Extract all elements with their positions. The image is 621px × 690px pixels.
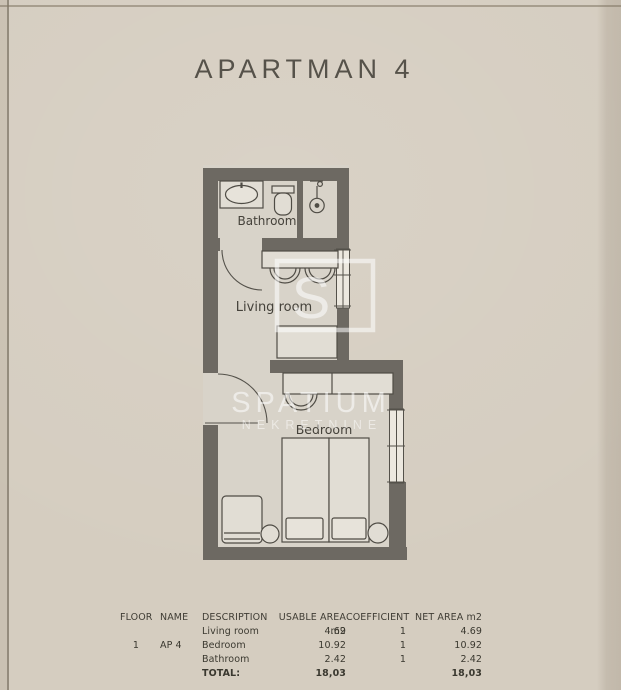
floor-plan-page-photo: APARTMAN 4 — [0, 0, 621, 690]
cell-description: Living room — [200, 625, 278, 639]
cell-usable-area: 4.69 — [278, 625, 346, 639]
area-table: FLOOR NAME DESCRIPTION USABLE AREA m2 CO… — [116, 611, 488, 681]
cell-floor: 1 — [116, 639, 156, 653]
total-label: TOTAL: — [200, 667, 278, 681]
col-header-floor: FLOOR — [116, 611, 156, 625]
cell-name — [156, 625, 200, 639]
cell-floor-total — [116, 667, 156, 681]
col-header-usable-area: USABLE AREA m2 — [278, 611, 346, 625]
watermark-logo-letter: S — [292, 266, 331, 331]
cell-name: AP 4 — [156, 639, 200, 653]
col-header-name: NAME — [156, 611, 200, 625]
wall-bathroom-bottom-left — [203, 238, 220, 251]
col-header-coefficient: COEFFICIENT — [346, 611, 414, 625]
nightstand-right — [368, 523, 388, 543]
cell-coefficient: 1 — [346, 639, 414, 653]
cell-description: Bedroom — [200, 639, 278, 653]
cell-description: Bathroom — [200, 653, 278, 667]
wall-bathroom-bottom-right — [262, 238, 349, 251]
cell-floor — [116, 625, 156, 639]
cell-usable-area: 10.92 — [278, 639, 346, 653]
cell-net-area: 2.42 — [414, 653, 484, 667]
cell-net-area: 4.69 — [414, 625, 484, 639]
watermark-brand: SPATIUM — [231, 387, 391, 419]
floor-plan: Bathroom Living room Bedroom S SPATIUM N… — [0, 0, 621, 690]
col-header-net-area: NET AREA m2 — [414, 611, 484, 625]
pillow-right — [332, 518, 366, 539]
total-coefficient — [346, 667, 414, 681]
toilet-cistern — [272, 186, 294, 193]
wall-right-upper — [337, 181, 349, 250]
bathroom-label: Bathroom — [238, 214, 297, 228]
wall-left-upper — [203, 168, 218, 373]
cell-coefficient: 1 — [346, 653, 414, 667]
cell-usable-area: 2.42 — [278, 653, 346, 667]
cell-name — [156, 653, 200, 667]
wall-bottom — [203, 547, 407, 560]
cell-name-total — [156, 667, 200, 681]
watermark-subbrand: NEKRETNINE — [242, 418, 383, 432]
col-header-description: DESCRIPTION — [200, 611, 278, 625]
wall-left-lower — [203, 425, 218, 560]
cell-net-area: 10.92 — [414, 639, 484, 653]
wardrobe — [222, 496, 262, 543]
wall-bathroom-shower-divider — [297, 181, 303, 238]
bedroom-window — [387, 409, 405, 483]
sink — [226, 186, 258, 204]
total-usable-area: 18,03 — [278, 667, 346, 681]
toilet — [275, 193, 292, 215]
total-net-area: 18,03 — [414, 667, 484, 681]
nightstand-left — [261, 525, 279, 543]
cell-floor — [116, 653, 156, 667]
pillow-left — [286, 518, 323, 539]
cell-coefficient: 1 — [346, 625, 414, 639]
wall-bedroom-top — [270, 360, 402, 373]
wall-top — [203, 168, 349, 181]
wall-bedroom-right-lower — [389, 482, 406, 548]
